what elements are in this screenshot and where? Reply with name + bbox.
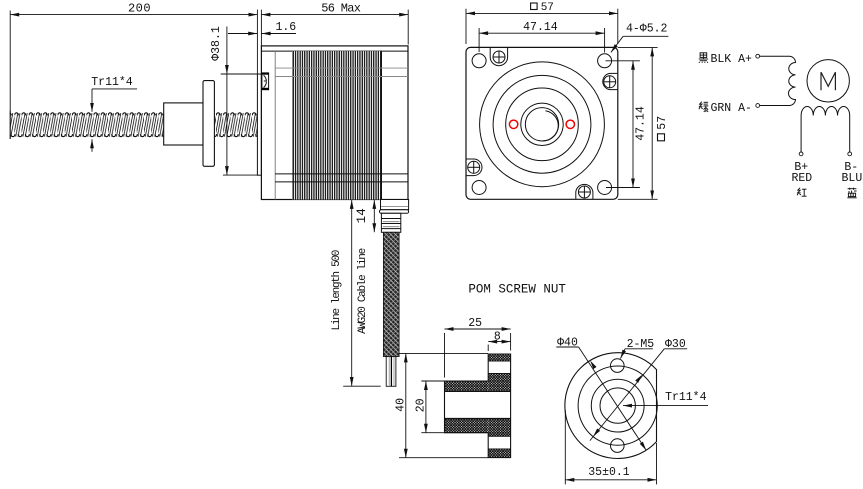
svg-text:Φ38.1: Φ38.1: [210, 26, 223, 61]
svg-text:47.14: 47.14: [634, 106, 647, 141]
svg-text:GRN A-: GRN A-: [711, 102, 752, 115]
svg-text:Tr11*4: Tr11*4: [91, 76, 133, 89]
svg-text:8: 8: [494, 331, 501, 344]
svg-text:35±0.1: 35±0.1: [588, 466, 630, 479]
svg-text:47.14: 47.14: [523, 21, 558, 34]
svg-text:14: 14: [355, 208, 369, 223]
svg-text:56 Max: 56 Max: [321, 1, 361, 15]
svg-text:57: 57: [541, 2, 554, 14]
svg-text:25: 25: [468, 317, 482, 330]
svg-text:BLU: BLU: [842, 172, 863, 185]
svg-text:200: 200: [128, 1, 151, 15]
svg-text:4-Φ5.2: 4-Φ5.2: [626, 23, 668, 36]
svg-text:RED: RED: [791, 172, 812, 185]
svg-text:40: 40: [395, 398, 408, 412]
svg-text:Tr11*4: Tr11*4: [665, 391, 707, 404]
svg-text:POM SCREW NUT: POM SCREW NUT: [468, 282, 566, 296]
svg-text:Line length 500: Line length 500: [331, 250, 343, 330]
svg-text:1.6: 1.6: [275, 21, 296, 34]
svg-text:AWG20 Cable line: AWG20 Cable line: [357, 248, 369, 334]
svg-text:20: 20: [415, 398, 428, 412]
svg-text:BLK A+: BLK A+: [711, 53, 753, 66]
svg-text:57: 57: [656, 116, 669, 130]
